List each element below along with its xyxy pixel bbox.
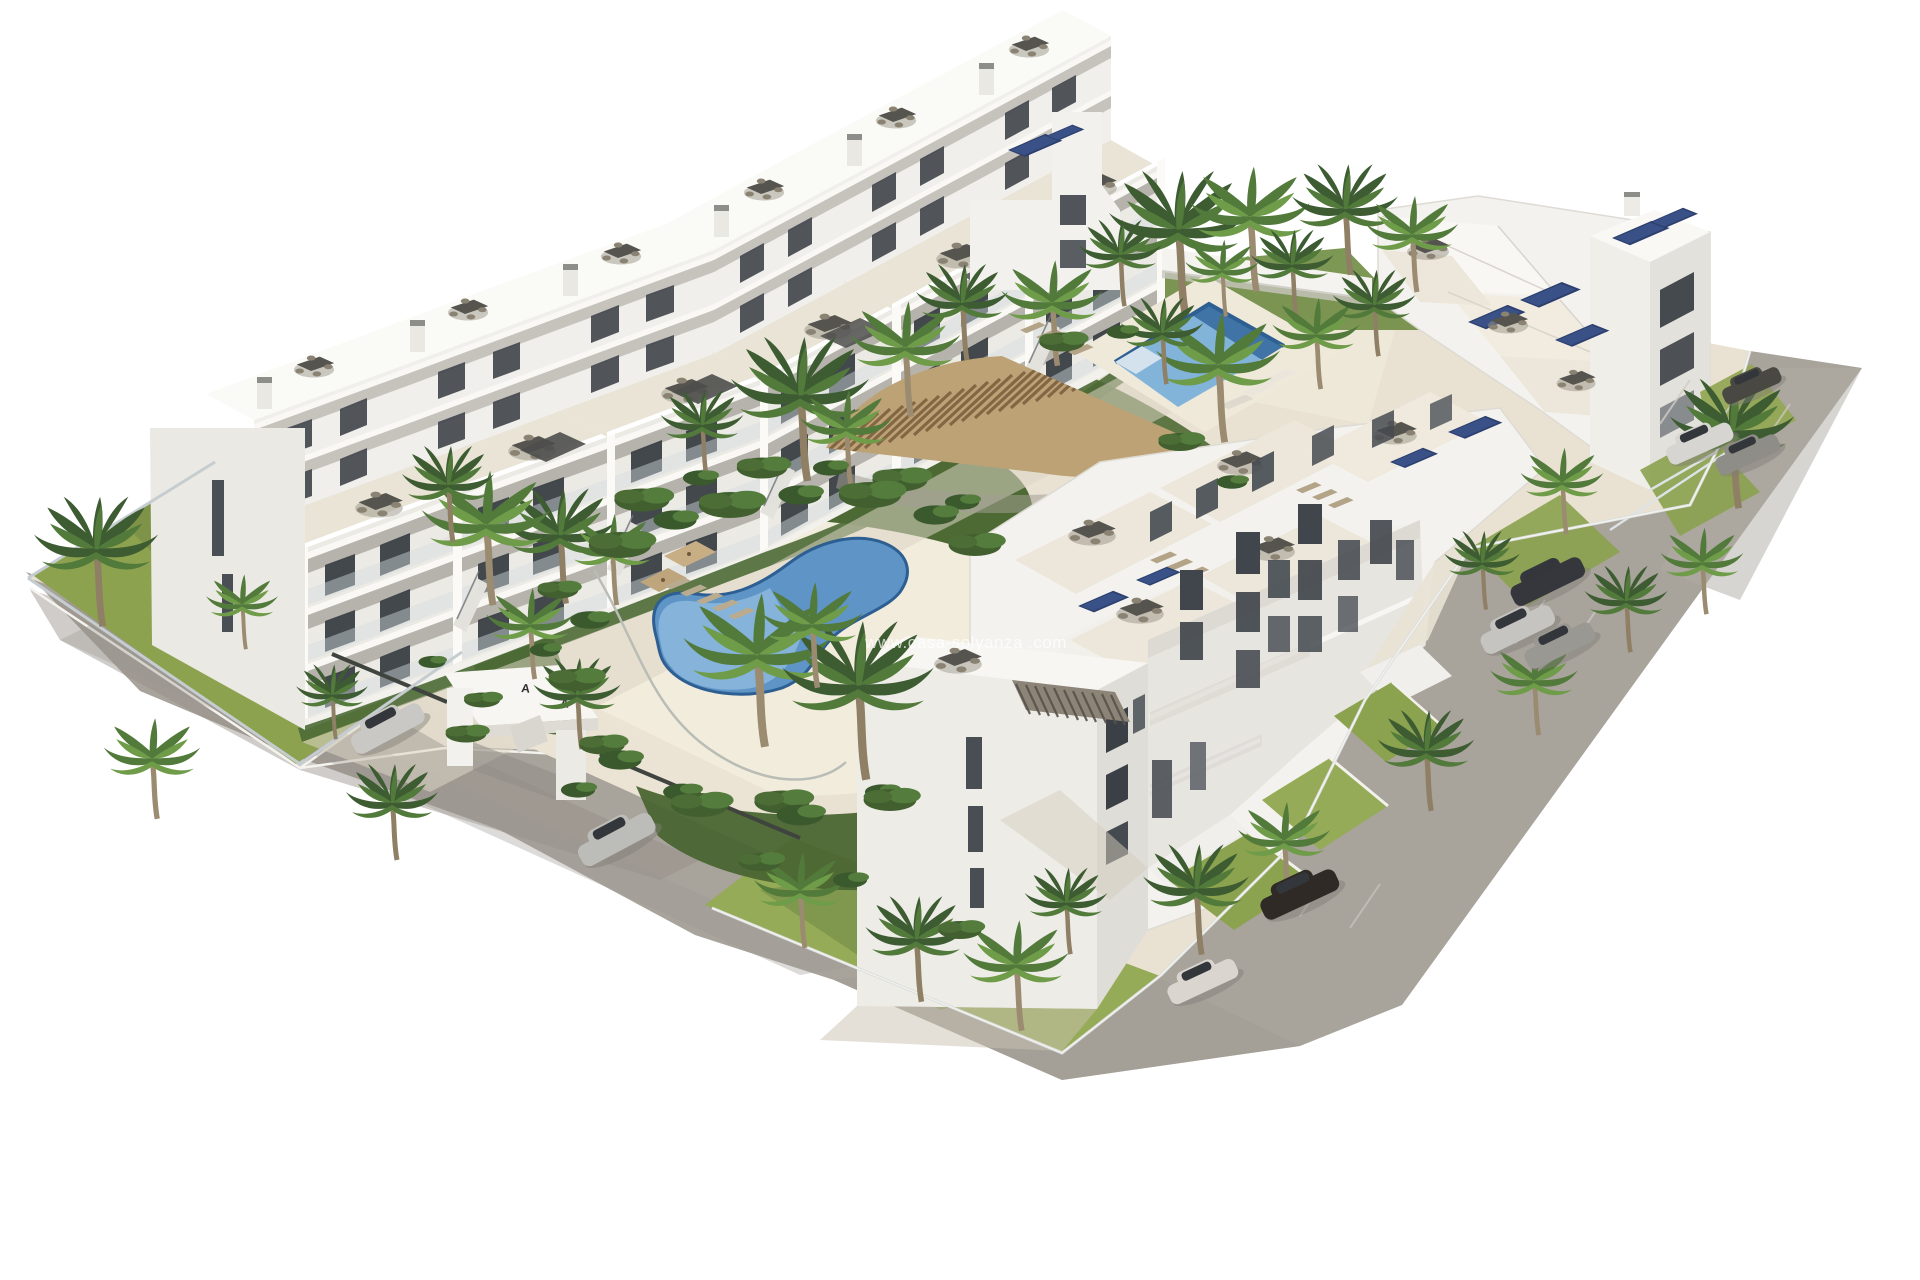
svg-text:www.casa-solyanza .com: www.casa-solyanza .com: [864, 633, 1067, 652]
svg-text:A: A: [521, 681, 531, 696]
